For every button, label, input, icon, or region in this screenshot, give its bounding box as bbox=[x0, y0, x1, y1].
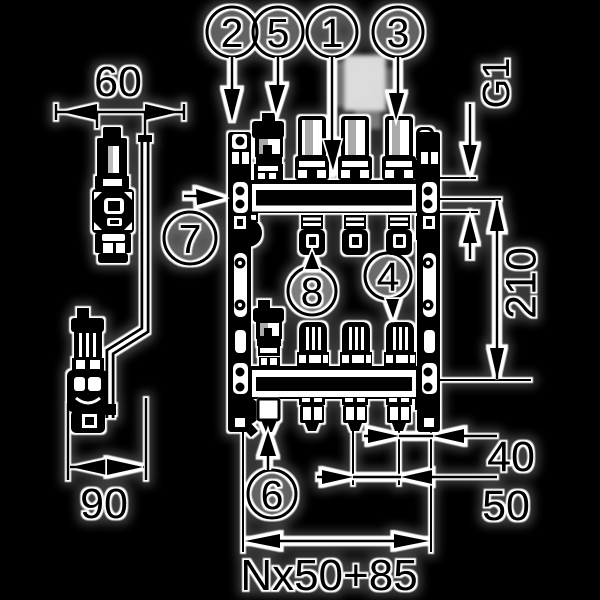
svg-text:60: 60 bbox=[94, 58, 142, 106]
svg-text:5: 5 bbox=[267, 10, 290, 56]
svg-text:4: 4 bbox=[377, 254, 400, 300]
svg-text:40: 40 bbox=[487, 433, 535, 481]
svg-text:1: 1 bbox=[321, 10, 344, 56]
svg-text:6: 6 bbox=[261, 472, 284, 518]
svg-text:Nx50+85: Nx50+85 bbox=[240, 551, 417, 600]
svg-text:2: 2 bbox=[221, 10, 244, 56]
svg-text:G1: G1 bbox=[476, 58, 518, 109]
svg-text:50: 50 bbox=[482, 482, 530, 530]
svg-text:210: 210 bbox=[497, 247, 545, 319]
svg-text:7: 7 bbox=[179, 216, 202, 262]
svg-text:8: 8 bbox=[301, 269, 324, 315]
svg-text:90: 90 bbox=[80, 480, 128, 528]
svg-text:3: 3 bbox=[387, 10, 410, 56]
